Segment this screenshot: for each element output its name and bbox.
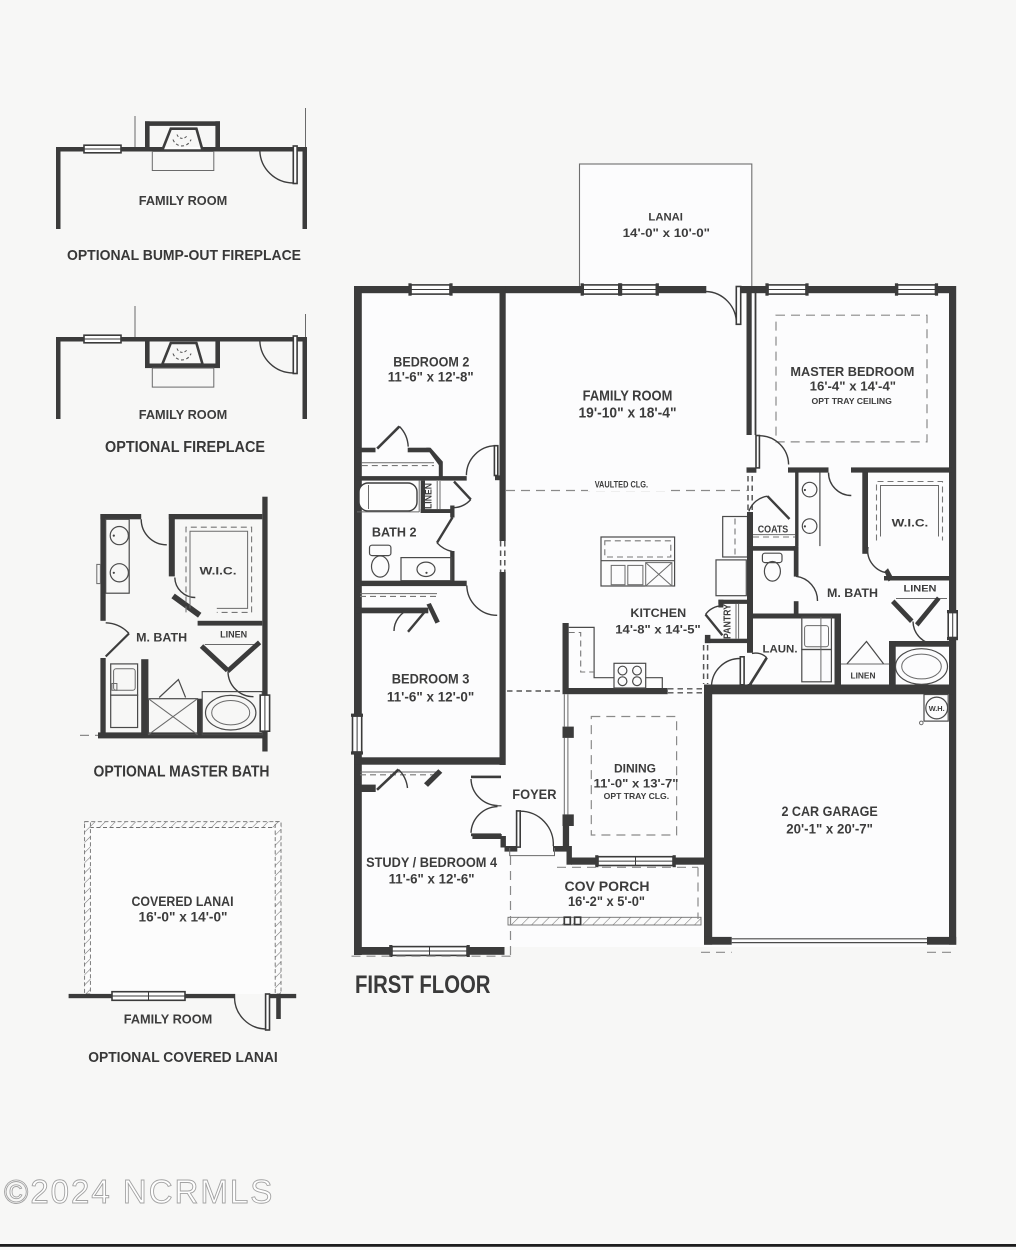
svg-text:OPTIONAL COVERED LANAI: OPTIONAL COVERED LANAI xyxy=(88,1049,278,1066)
svg-text:FAMILY ROOM: FAMILY ROOM xyxy=(139,194,228,208)
svg-text:11'-6" x 12'-8": 11'-6" x 12'-8" xyxy=(388,370,474,385)
svg-text:W.H.: W.H. xyxy=(929,704,945,713)
svg-text:LINEN: LINEN xyxy=(851,671,876,681)
svg-text:OPT TRAY CEILING: OPT TRAY CEILING xyxy=(812,396,892,406)
svg-text:LINEN: LINEN xyxy=(220,630,247,640)
svg-text:FAMILY ROOM: FAMILY ROOM xyxy=(583,389,673,405)
svg-text:COATS: COATS xyxy=(758,524,789,536)
svg-text:STUDY / BEDROOM 4: STUDY / BEDROOM 4 xyxy=(366,855,498,870)
svg-text:VAULTED CLG.: VAULTED CLG. xyxy=(595,480,648,490)
svg-text:16'-0" x 14'-0": 16'-0" x 14'-0" xyxy=(139,910,228,925)
svg-text:19'-10" x 18'-4": 19'-10" x 18'-4" xyxy=(579,406,677,422)
svg-text:16'-2" x 5'-0": 16'-2" x 5'-0" xyxy=(568,893,645,909)
svg-text:11'-6" x 12'-6": 11'-6" x 12'-6" xyxy=(389,872,475,887)
svg-text:FAMILY ROOM: FAMILY ROOM xyxy=(124,1013,213,1027)
svg-text:COV PORCH: COV PORCH xyxy=(565,878,650,894)
svg-text:FIRST FLOOR: FIRST FLOOR xyxy=(355,971,491,999)
svg-text:OPT TRAY CLG.: OPT TRAY CLG. xyxy=(604,792,670,801)
svg-text:14'-8" x 14'-5": 14'-8" x 14'-5" xyxy=(615,625,700,637)
svg-text:14'-0" x 10'-0": 14'-0" x 10'-0" xyxy=(623,227,710,240)
svg-text:M. BATH: M. BATH xyxy=(136,631,187,645)
svg-text:LAUN.: LAUN. xyxy=(763,643,798,655)
svg-text:BEDROOM 2: BEDROOM 2 xyxy=(393,355,469,370)
svg-text:FOYER: FOYER xyxy=(512,787,556,802)
svg-text:BEDROOM 3: BEDROOM 3 xyxy=(392,672,470,687)
svg-text:DINING: DINING xyxy=(614,763,656,776)
svg-text:OPTIONAL FIREPLACE: OPTIONAL FIREPLACE xyxy=(105,439,265,456)
svg-text:OPTIONAL MASTER BATH: OPTIONAL MASTER BATH xyxy=(94,764,270,781)
svg-text:BATH 2: BATH 2 xyxy=(372,525,417,540)
svg-text:©2024 NCRMLS: ©2024 NCRMLS xyxy=(4,1173,274,1210)
svg-text:MASTER BEDROOM: MASTER BEDROOM xyxy=(790,365,914,379)
svg-text:LANAI: LANAI xyxy=(648,212,683,224)
svg-text:W.I.C.: W.I.C. xyxy=(892,518,929,530)
svg-text:11'-0" x 13'-7": 11'-0" x 13'-7" xyxy=(594,778,679,791)
svg-text:2 CAR GARAGE: 2 CAR GARAGE xyxy=(781,804,877,819)
svg-text:KITCHEN: KITCHEN xyxy=(630,608,686,620)
svg-text:M. BATH: M. BATH xyxy=(827,586,878,600)
svg-text:PANTRY: PANTRY xyxy=(723,604,734,639)
svg-text:LINEN: LINEN xyxy=(904,584,937,595)
svg-text:20'-1" x 20'-7": 20'-1" x 20'-7" xyxy=(786,821,873,836)
svg-text:OPTIONAL BUMP-OUT FIREPLACE: OPTIONAL BUMP-OUT FIREPLACE xyxy=(67,248,301,264)
svg-text:16'-4" x 14'-4": 16'-4" x 14'-4" xyxy=(810,380,896,394)
svg-text:FAMILY ROOM: FAMILY ROOM xyxy=(139,408,228,422)
svg-text:LINEN: LINEN xyxy=(424,483,434,509)
svg-text:COVERED LANAI: COVERED LANAI xyxy=(132,894,234,909)
svg-text:W.I.C.: W.I.C. xyxy=(200,566,237,578)
svg-text:11'-6" x 12'-0": 11'-6" x 12'-0" xyxy=(387,690,474,705)
